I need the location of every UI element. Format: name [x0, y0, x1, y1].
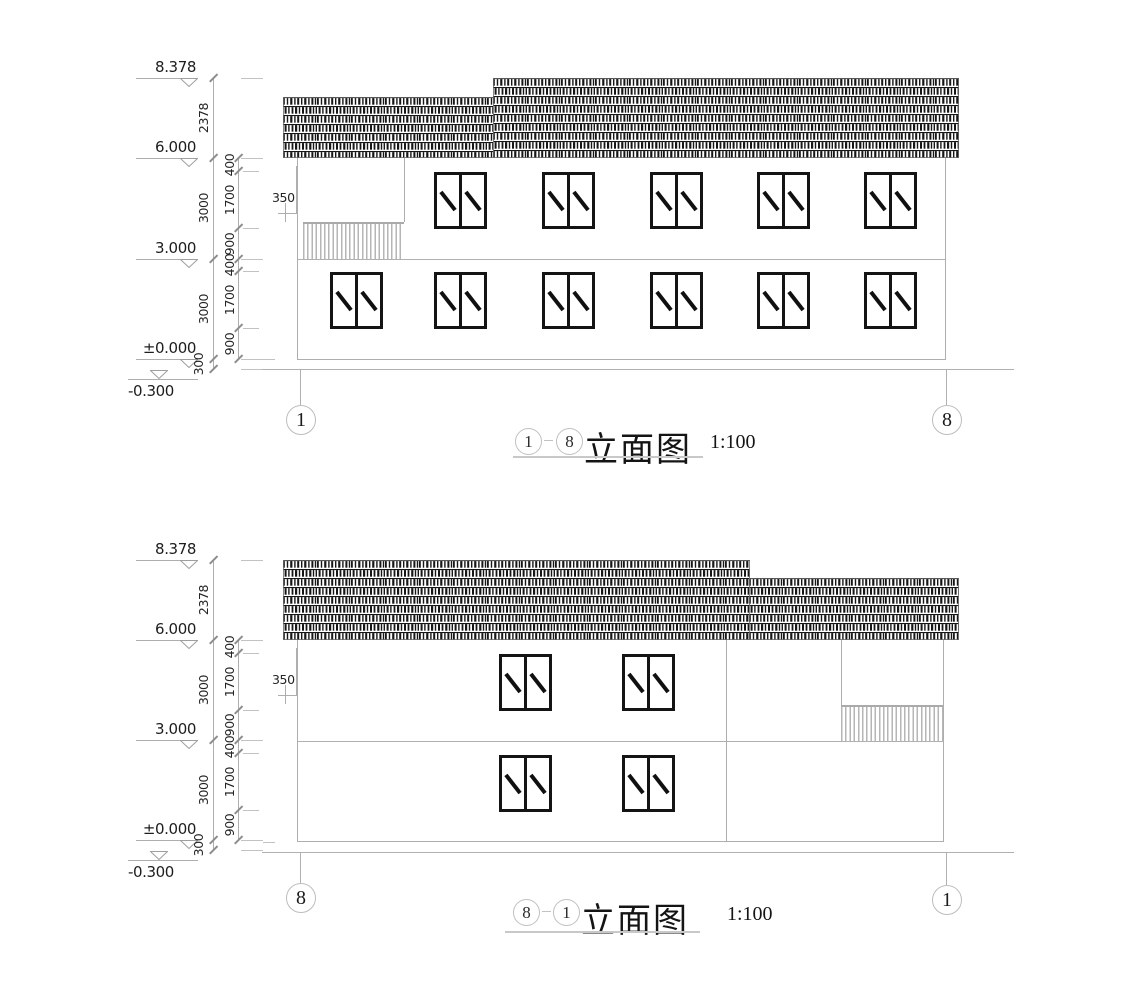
extension-dash	[241, 640, 263, 641]
glazing-mark-icon	[655, 190, 672, 211]
window	[330, 272, 383, 329]
level-marker-triangle-icon	[180, 259, 198, 268]
level-label: 8.378	[118, 58, 196, 76]
dimension-text: 900	[222, 316, 236, 372]
level-marker-triangle-icon	[180, 560, 198, 569]
title-bubble-right: 1	[553, 899, 580, 926]
grid-bubble-left: 8	[286, 883, 316, 913]
glazing-mark-icon	[547, 190, 564, 211]
level-marker-line	[128, 860, 198, 861]
glazing-mark-icon	[652, 773, 669, 794]
roof-tile-hatch	[749, 578, 959, 640]
window-pane	[570, 275, 592, 326]
level-marker-line	[128, 379, 198, 380]
glazing-mark-icon	[655, 290, 672, 311]
window-pane	[678, 275, 700, 326]
level-label: 6.000	[118, 620, 196, 638]
dimension-text: 2378	[196, 90, 210, 146]
title-text: 立面图	[581, 893, 689, 942]
glazing-mark-icon	[680, 190, 697, 211]
window-pane	[760, 275, 785, 326]
glazing-mark-icon	[787, 190, 804, 211]
glazing-mark-icon	[627, 773, 644, 794]
grid-leader	[946, 853, 947, 885]
dimension-line-outer	[213, 78, 214, 369]
wall-corner-line	[726, 640, 727, 842]
glazing-mark-icon	[464, 190, 481, 211]
dimension-text: 3000	[196, 281, 210, 337]
eave-dim-line	[278, 695, 298, 696]
window-pane	[502, 657, 527, 708]
grid-bubble-left: 1	[286, 405, 316, 435]
window	[864, 172, 917, 229]
title-underline	[505, 931, 700, 933]
glazing-mark-icon	[439, 290, 456, 311]
extension-dash	[241, 740, 263, 741]
window-pane	[502, 758, 527, 809]
extension-dash	[243, 653, 259, 654]
window	[542, 272, 595, 329]
window-pane	[437, 275, 462, 326]
extension-dash	[241, 850, 263, 851]
grid-leader	[300, 370, 301, 405]
extension-dash	[241, 369, 263, 370]
eave-dimension-text: 350	[272, 190, 295, 205]
glazing-mark-icon	[627, 672, 644, 693]
title-scale: 1:100	[710, 431, 756, 454]
extension-dash	[241, 78, 263, 79]
window-pane	[653, 275, 678, 326]
balcony-wall-edge	[404, 158, 405, 222]
glazing-mark-icon	[787, 290, 804, 311]
glazing-mark-icon	[869, 290, 886, 311]
window-pane	[570, 175, 592, 226]
drawing-canvas: 8.378 6.000 3.000 ±0.000 -0.300 2378 300…	[0, 0, 1144, 994]
window-pane	[785, 275, 807, 326]
level-label: 6.000	[118, 138, 196, 156]
window-pane	[462, 175, 484, 226]
extension-dash	[243, 171, 259, 172]
eave-dimension-text: 350	[272, 672, 295, 687]
glazing-mark-icon	[894, 290, 911, 311]
level-marker-triangle-icon	[180, 78, 198, 87]
glazing-mark-icon	[572, 290, 589, 311]
dimension-text: 3000	[196, 662, 210, 718]
level-label: 3.000	[118, 239, 196, 257]
extension-dash	[243, 228, 259, 229]
eave-dim-line	[278, 213, 298, 214]
balcony-wall-edge	[841, 640, 842, 705]
window-pane	[867, 275, 892, 326]
window	[434, 272, 487, 329]
title-scale: 1:100	[727, 903, 773, 926]
glazing-mark-icon	[529, 773, 546, 794]
dimension-text: 900	[222, 797, 236, 853]
grid-leader	[946, 370, 947, 405]
glazing-mark-icon	[360, 290, 377, 311]
window-pane	[892, 275, 914, 326]
window-pane	[625, 758, 650, 809]
extension-dash	[243, 753, 259, 754]
window-pane	[437, 175, 462, 226]
extension-dash	[241, 560, 263, 561]
glazing-mark-icon	[652, 672, 669, 693]
roof-tile-hatch	[283, 560, 750, 640]
window	[542, 172, 595, 229]
window	[650, 172, 703, 229]
window-pane	[785, 175, 807, 226]
window-pane	[867, 175, 892, 226]
window	[499, 755, 552, 812]
glazing-mark-icon	[762, 190, 779, 211]
level-label: ±0.000	[118, 339, 196, 357]
level-label: ±0.000	[118, 820, 196, 838]
glazing-mark-icon	[762, 290, 779, 311]
glazing-mark-icon	[464, 290, 481, 311]
dimension-text: 3000	[196, 762, 210, 818]
extension-dash	[243, 810, 259, 811]
title-bubble-left: 8	[513, 899, 540, 926]
extension-dash	[241, 158, 263, 159]
title-dash	[544, 440, 553, 442]
extension-dash	[243, 328, 259, 329]
window-pane	[527, 758, 549, 809]
dimension-text: 2378	[196, 572, 210, 628]
balcony-railing	[841, 705, 943, 741]
window-pane	[333, 275, 358, 326]
window-pane	[892, 175, 914, 226]
level-label: 3.000	[118, 720, 196, 738]
extension-dash	[243, 271, 259, 272]
glazing-mark-icon	[504, 672, 521, 693]
glazing-mark-icon	[504, 773, 521, 794]
level-marker-triangle-icon	[180, 158, 198, 167]
glazing-mark-icon	[894, 190, 911, 211]
level-label: 8.378	[118, 540, 196, 558]
title-text: 立面图	[584, 422, 692, 471]
glazing-mark-icon	[547, 290, 564, 311]
roof-tile-hatch	[493, 78, 959, 158]
window	[499, 654, 552, 711]
glazing-mark-icon	[529, 672, 546, 693]
grid-leader	[300, 853, 301, 883]
window	[757, 172, 810, 229]
dimension-text: 300	[191, 336, 205, 392]
window	[757, 272, 810, 329]
window	[622, 755, 675, 812]
extension-dash	[243, 710, 259, 711]
window-pane	[545, 275, 570, 326]
level-marker-triangle-icon	[180, 740, 198, 749]
window-pane	[650, 657, 672, 708]
glazing-mark-icon	[335, 290, 352, 311]
window-pane	[358, 275, 380, 326]
title-underline	[513, 456, 703, 458]
glazing-mark-icon	[572, 190, 589, 211]
ground-dash	[263, 359, 275, 360]
extension-dash	[241, 259, 263, 260]
title-bubble-right: 8	[556, 428, 583, 455]
ground-dash	[263, 842, 275, 843]
level-label: -0.300	[128, 863, 174, 881]
window-pane	[462, 275, 484, 326]
window-pane	[650, 758, 672, 809]
grid-bubble-right: 1	[932, 885, 962, 915]
dimension-line-outer	[213, 560, 214, 850]
window-pane	[653, 175, 678, 226]
grid-bubble-right: 8	[932, 405, 962, 435]
window-pane	[545, 175, 570, 226]
dimension-text: 3000	[196, 180, 210, 236]
glazing-mark-icon	[439, 190, 456, 211]
dimension-text: 300	[191, 817, 205, 873]
window-pane	[527, 657, 549, 708]
extension-dash	[241, 840, 263, 841]
window	[650, 272, 703, 329]
window	[864, 272, 917, 329]
level-label: -0.300	[128, 382, 174, 400]
glazing-mark-icon	[680, 290, 697, 311]
balcony-railing	[303, 222, 404, 259]
ground-line	[262, 852, 1014, 854]
title-dash	[542, 911, 551, 913]
title-bubble-left: 1	[515, 428, 542, 455]
level-marker-triangle-icon	[180, 640, 198, 649]
extension-dash	[241, 359, 263, 360]
window	[434, 172, 487, 229]
window-pane	[760, 175, 785, 226]
roof-tile-hatch	[283, 97, 494, 158]
glazing-mark-icon	[869, 190, 886, 211]
window-pane	[678, 175, 700, 226]
window-pane	[625, 657, 650, 708]
ground-line	[262, 369, 1014, 371]
window	[622, 654, 675, 711]
